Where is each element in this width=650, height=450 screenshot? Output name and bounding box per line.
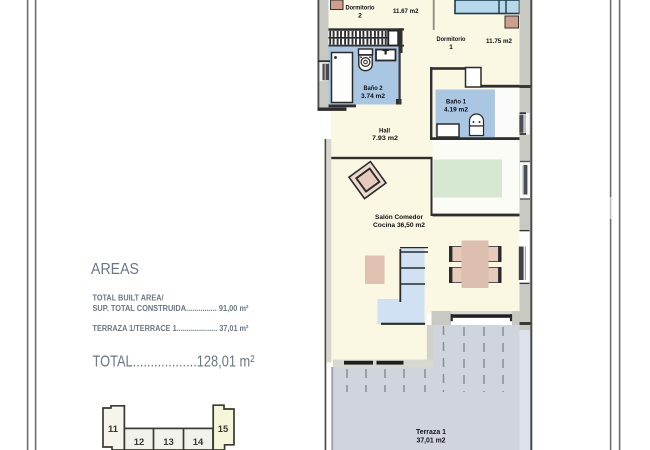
svg-text:11.75 m2: 11.75 m2 bbox=[486, 38, 512, 45]
svg-text:13: 13 bbox=[163, 437, 174, 448]
svg-text:7.93 m2: 7.93 m2 bbox=[372, 135, 398, 142]
svg-text:AREAS: AREAS bbox=[91, 261, 139, 278]
svg-text:Dormitorio: Dormitorio bbox=[437, 36, 466, 43]
svg-text:SUP. TOTAL CONSTRUIDA.........: SUP. TOTAL CONSTRUIDA............... 91,… bbox=[93, 303, 249, 313]
svg-text:14: 14 bbox=[193, 437, 204, 448]
svg-text:TOTAL..................128,01: TOTAL..................128,01 m² bbox=[93, 354, 256, 371]
svg-text:2: 2 bbox=[358, 13, 362, 20]
svg-text:Dormitorio: Dormitorio bbox=[346, 5, 375, 12]
svg-text:11.67 m2: 11.67 m2 bbox=[393, 8, 419, 15]
svg-text:4.19 m2: 4.19 m2 bbox=[444, 107, 468, 114]
svg-text:1: 1 bbox=[449, 44, 453, 51]
svg-text:Cocina 36,50 m2: Cocina 36,50 m2 bbox=[373, 222, 425, 229]
svg-text:11: 11 bbox=[108, 424, 119, 435]
svg-text:3.74 m2: 3.74 m2 bbox=[361, 93, 385, 100]
svg-text:15: 15 bbox=[218, 424, 229, 435]
svg-text:37,01 m2: 37,01 m2 bbox=[417, 436, 446, 445]
svg-text:Baño 1: Baño 1 bbox=[446, 99, 466, 106]
svg-text:Baño 2: Baño 2 bbox=[364, 85, 383, 92]
svg-text:12: 12 bbox=[134, 437, 145, 448]
svg-text:Salón Comedor: Salón Comedor bbox=[375, 214, 423, 221]
svg-text:TOTAL BUILT AREA/: TOTAL BUILT AREA/ bbox=[93, 293, 165, 303]
svg-text:TERRAZA 1/TERRACE 1...........: TERRAZA 1/TERRACE 1.................... … bbox=[93, 323, 249, 333]
svg-text:Hall: Hall bbox=[379, 128, 390, 135]
